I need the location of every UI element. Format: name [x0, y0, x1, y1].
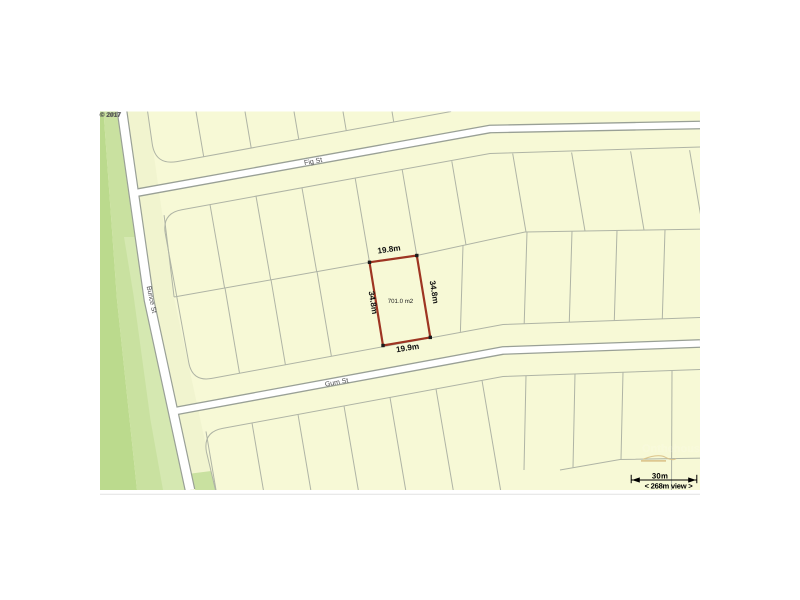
svg-text:© 2017: © 2017 [100, 111, 121, 118]
svg-text:Onthehouse: Onthehouse [642, 443, 706, 455]
svg-text:30m: 30m [652, 471, 668, 480]
svg-text:< 268m view >: < 268m view > [645, 481, 694, 490]
svg-text:701.0 m2: 701.0 m2 [388, 298, 414, 305]
